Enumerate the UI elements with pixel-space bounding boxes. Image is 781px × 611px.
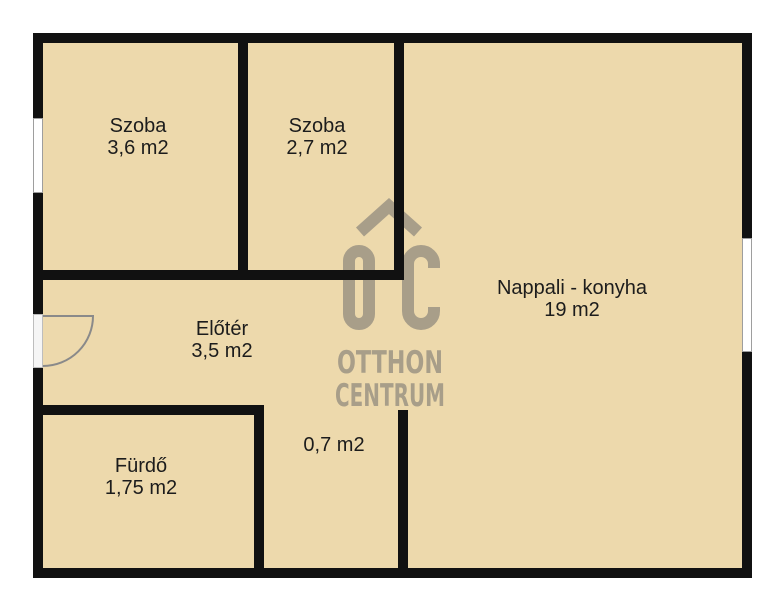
room-area: 3,5 m2 — [191, 340, 252, 362]
room-name: Nappali - konyha — [497, 277, 647, 299]
window-right-wall — [742, 238, 752, 352]
room-label-eloter: Előtér 3,5 m2 — [191, 318, 252, 362]
room-label-szoba2: Szoba 2,7 m2 — [286, 115, 347, 159]
room-name: Fürdő — [105, 455, 177, 477]
wall-nappali-lower-left — [398, 410, 408, 568]
wall-outer-left — [33, 33, 43, 578]
wall-eloter-top — [43, 270, 404, 280]
wall-furdo-top — [43, 405, 264, 415]
room-label-nappali-konyha: Nappali - konyha 19 m2 — [497, 277, 647, 321]
room-name: Szoba — [286, 115, 347, 137]
room-area: 2,7 m2 — [286, 137, 347, 159]
wall-outer-top — [33, 33, 752, 43]
window-left-wall — [33, 118, 43, 193]
room-label-szoba1: Szoba 3,6 m2 — [107, 115, 168, 159]
wall-between-szoba2-nappali — [394, 43, 404, 280]
room-label-furdo: Fürdő 1,75 m2 — [105, 455, 177, 499]
wall-furdo-right — [254, 405, 264, 568]
wall-outer-bottom — [33, 568, 752, 578]
entry-door-opening — [33, 314, 43, 368]
wall-between-szoba1-szoba2 — [238, 43, 248, 280]
room-area: 1,75 m2 — [105, 477, 177, 499]
room-area: 0,7 m2 — [303, 434, 364, 456]
room-name: Szoba — [107, 115, 168, 137]
floorplan-image: OTTHON CENTRUM Szoba 3,6 m2 Szoba 2,7 m2… — [0, 0, 781, 611]
room-area: 19 m2 — [497, 299, 647, 321]
room-area: 3,6 m2 — [107, 137, 168, 159]
room-name: Előtér — [191, 318, 252, 340]
room-label-small-area: 0,7 m2 — [303, 434, 364, 456]
